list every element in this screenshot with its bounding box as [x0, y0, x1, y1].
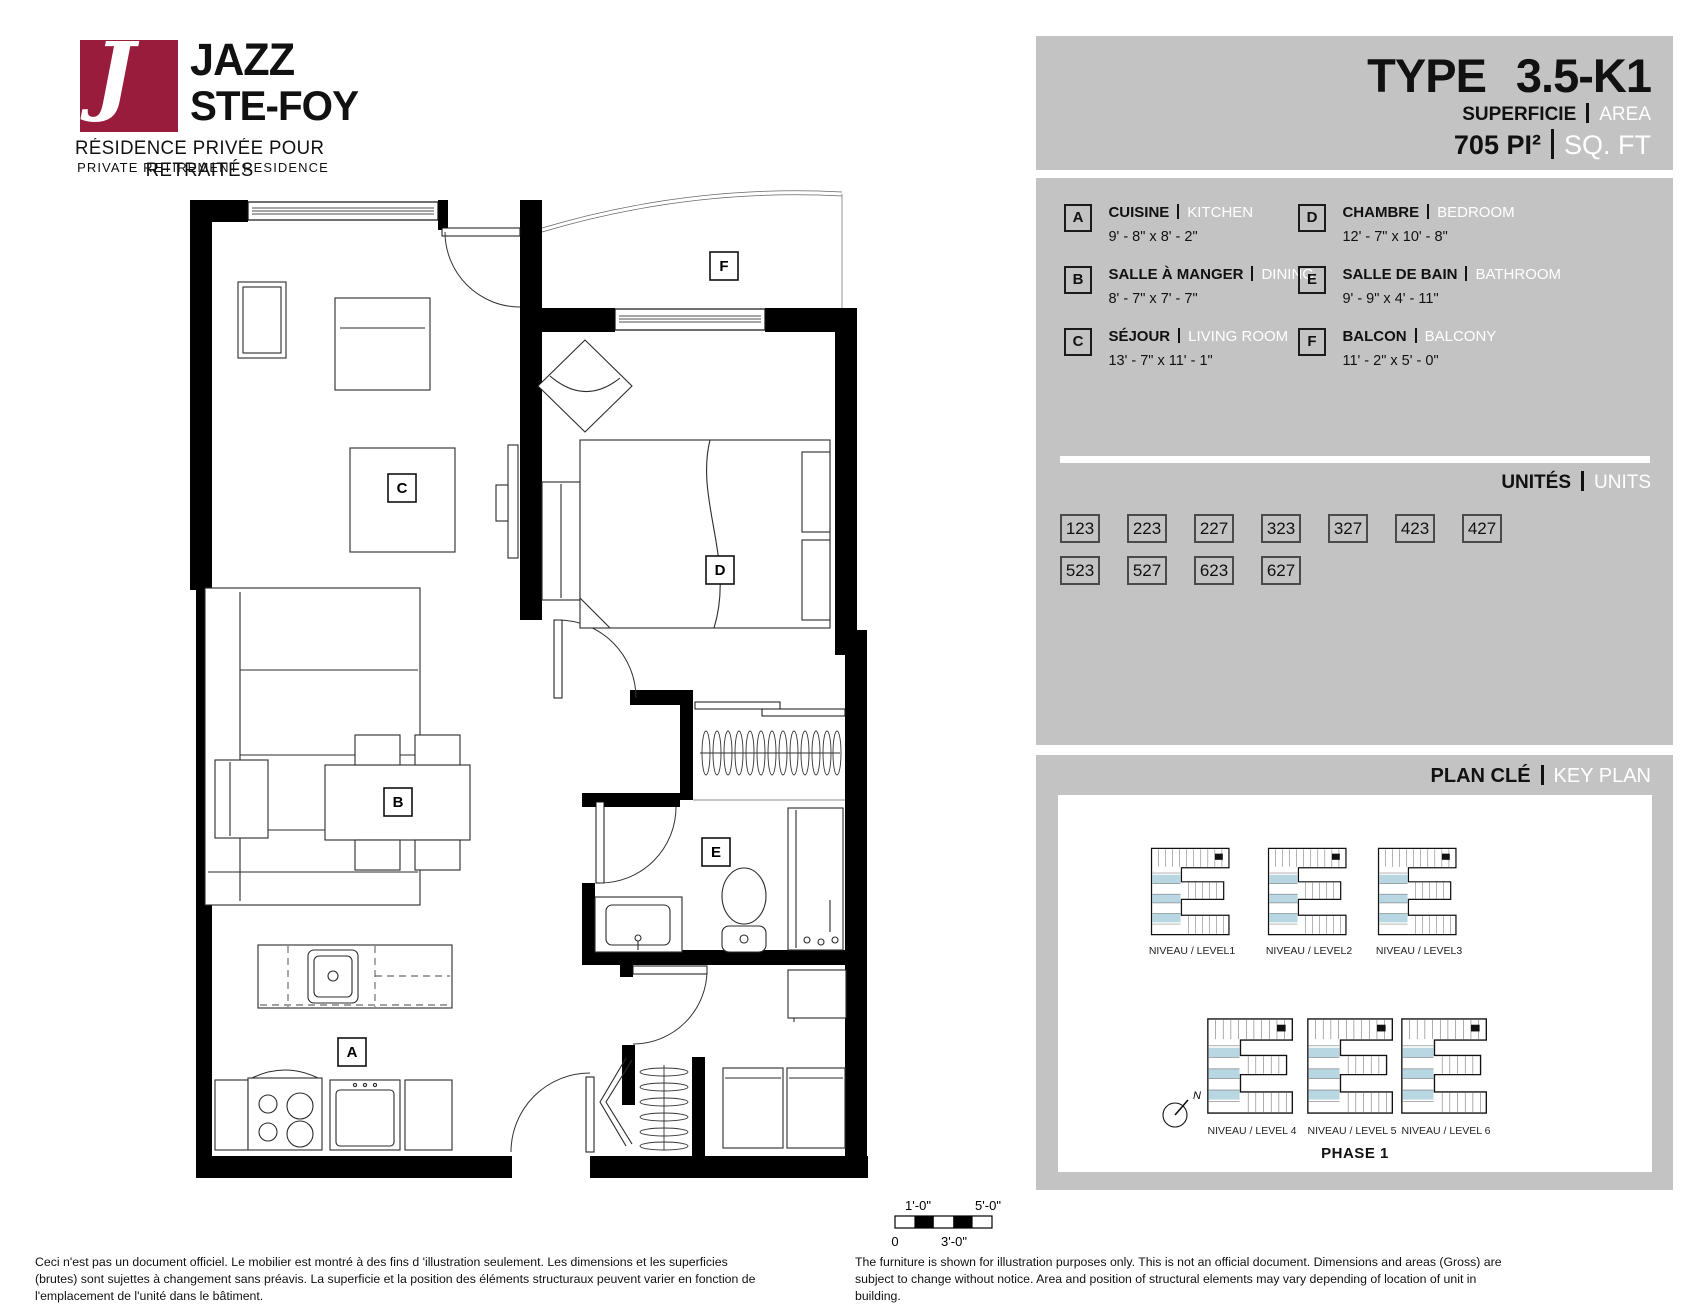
unit-badge: 423	[1395, 514, 1435, 543]
unit-badge: 623	[1194, 556, 1234, 585]
room-name-fr: CUISINE	[1108, 204, 1169, 221]
compass-icon: N	[1153, 1087, 1203, 1138]
unit-badge: 323	[1261, 514, 1301, 543]
unit-badge: 523	[1060, 556, 1100, 585]
brand-name-line2: STE-FOY	[190, 82, 358, 130]
type-header-panel: TYPE3.5-K1 SUPERFICIEAREA 705 PI²SQ. FT	[1036, 36, 1673, 170]
bedroom-door	[554, 620, 636, 698]
plan-label-e: E	[711, 844, 721, 861]
key-plan-canvas: NIVEAU / LEVEL1 NIVEAU / LEVEL2 NIVEAU /…	[1058, 795, 1652, 1172]
bedroom-closet	[693, 702, 845, 800]
plan-label-b: B	[393, 794, 404, 811]
room-dims: 9' - 9" x 4' - 11"	[1342, 291, 1561, 307]
room-name-en: KITCHEN	[1187, 204, 1253, 221]
scale-label-3ft: 3'-0"	[941, 1234, 967, 1249]
type-label: TYPE	[1367, 49, 1486, 102]
room-key-b: B	[1064, 266, 1092, 294]
type-value: 3.5-K1	[1516, 49, 1651, 102]
room-name-fr: SALLE DE BAIN	[1342, 266, 1457, 283]
key-plan-level-4	[1204, 1013, 1300, 1124]
disclaimer-en: The furniture is shown for illustration …	[855, 1254, 1515, 1305]
area-value-line: 705 PI²SQ. FT	[1454, 130, 1651, 161]
plan-label-c: C	[397, 480, 408, 497]
logo-mark: J	[80, 40, 178, 132]
bathroom-door	[596, 802, 676, 883]
unit-badge: 527	[1127, 556, 1167, 585]
unit-badge: 627	[1261, 556, 1301, 585]
key-plan-level-3	[1375, 843, 1463, 945]
unit-badge: 427	[1462, 514, 1502, 543]
balcony-door	[442, 228, 520, 307]
room-key-f: F	[1298, 328, 1326, 356]
room-name-fr: BALCON	[1342, 328, 1406, 345]
room-name-en: BEDROOM	[1437, 204, 1515, 221]
unit-type-title: TYPE3.5-K1	[1367, 48, 1651, 103]
room-dims: 13' - 7" x 11' - 1"	[1108, 353, 1288, 369]
units-heading: UNITÉSUNITS	[1501, 472, 1651, 494]
key-plan-level-5	[1304, 1013, 1400, 1124]
room-dims: 9' - 8" x 8' - 2"	[1108, 229, 1253, 245]
white-divider	[1060, 456, 1650, 463]
kitchen-island	[258, 945, 452, 1008]
phase-label: PHASE 1	[1058, 1145, 1652, 1162]
unit-badge: 227	[1194, 514, 1234, 543]
floor-plan-sheet: J JAZZ STE-FOY RÉSIDENCE PRIVÉE POUR RET…	[0, 0, 1690, 1306]
level-label: NIVEAU / LEVEL 6	[1381, 1125, 1511, 1137]
plan-label-a: A	[347, 1044, 358, 1061]
scale-label-0: 0	[891, 1234, 898, 1249]
unit-badge: 327	[1328, 514, 1368, 543]
room-dims: 8' - 7" x 7' - 7"	[1108, 291, 1314, 307]
units-label-en: UNITS	[1594, 472, 1651, 493]
key-plan-label-fr: PLAN CLÉ	[1431, 765, 1531, 787]
level-label: NIVEAU / LEVEL1	[1127, 945, 1257, 957]
floor-plan-drawing: A B C D E F	[190, 172, 868, 1178]
area-value: 705	[1454, 130, 1499, 160]
bathroom-fixtures	[595, 808, 843, 952]
kitchen-appliances	[215, 1070, 452, 1150]
legend-item-bedroom: D CHAMBREBEDROOM 12' - 7" x 10' - 8"	[1298, 204, 1598, 246]
scale-bar: 1'-0" 5'-0" 0 3'-0"	[878, 1190, 1018, 1254]
area-unit-fr: PI²	[1506, 130, 1541, 160]
entry-door	[511, 1073, 594, 1152]
balcony-railing	[542, 191, 842, 308]
scale-label-5ft: 5'-0"	[975, 1198, 1001, 1213]
room-dims: 11' - 2" x 5' - 0"	[1342, 353, 1496, 369]
area-label-en: AREA	[1599, 104, 1651, 125]
room-name-fr: SÉJOUR	[1108, 328, 1170, 345]
brand-name-line1: JAZZ	[190, 34, 294, 86]
scale-label-1ft: 1'-0"	[905, 1198, 931, 1213]
key-plan-level-2	[1265, 843, 1353, 945]
units-label-fr: UNITÉS	[1501, 472, 1571, 493]
key-plan-label-en: KEY PLAN	[1554, 765, 1651, 787]
room-name-en: BATHROOM	[1475, 266, 1561, 283]
room-key-a: A	[1064, 204, 1092, 232]
key-plan-level-6	[1398, 1013, 1494, 1124]
level-label: NIVEAU / LEVEL3	[1354, 945, 1484, 957]
windows	[248, 202, 765, 330]
key-plan-heading: PLAN CLÉKEY PLAN	[1431, 765, 1651, 788]
room-name-fr: SALLE À MANGER	[1108, 266, 1243, 283]
room-key-d: D	[1298, 204, 1326, 232]
unit-badge: 123	[1060, 514, 1100, 543]
legend-panel: A CUISINEKITCHEN 9' - 8" x 8' - 2" B SAL…	[1036, 178, 1673, 745]
bedroom-furniture	[538, 340, 830, 628]
room-name-en: BALCONY	[1425, 328, 1497, 345]
area-label: SUPERFICIEAREA	[1462, 104, 1651, 126]
disclaimer-fr: Ceci n'est pas un document officiel. Le …	[35, 1254, 763, 1305]
legend-item-bathroom: E SALLE DE BAINBATHROOM 9' - 9" x 4' - 1…	[1298, 266, 1598, 308]
key-plan-panel: PLAN CLÉKEY PLAN	[1036, 755, 1673, 1190]
compass-north-label: N	[1193, 1090, 1201, 1102]
legend-item-balcony: F BALCONBALCONY 11' - 2" x 5' - 0"	[1298, 328, 1598, 370]
area-unit-en: SQ. FT	[1564, 130, 1651, 160]
hall-door	[633, 966, 707, 1044]
logo-monogram-j: J	[94, 24, 135, 125]
plan-label-f: F	[719, 258, 728, 275]
plan-label-d: D	[715, 562, 726, 579]
room-key-c: C	[1064, 328, 1092, 356]
room-key-e: E	[1298, 266, 1326, 294]
room-name-en: LIVING ROOM	[1188, 328, 1288, 345]
unit-badge: 223	[1127, 514, 1167, 543]
laundry-units	[723, 970, 846, 1148]
entry-closet	[640, 1065, 688, 1150]
room-dims: 12' - 7" x 10' - 8"	[1342, 229, 1514, 245]
room-name-fr: CHAMBRE	[1342, 204, 1419, 221]
area-label-fr: SUPERFICIE	[1462, 104, 1576, 125]
key-plan-level-1	[1148, 843, 1236, 945]
